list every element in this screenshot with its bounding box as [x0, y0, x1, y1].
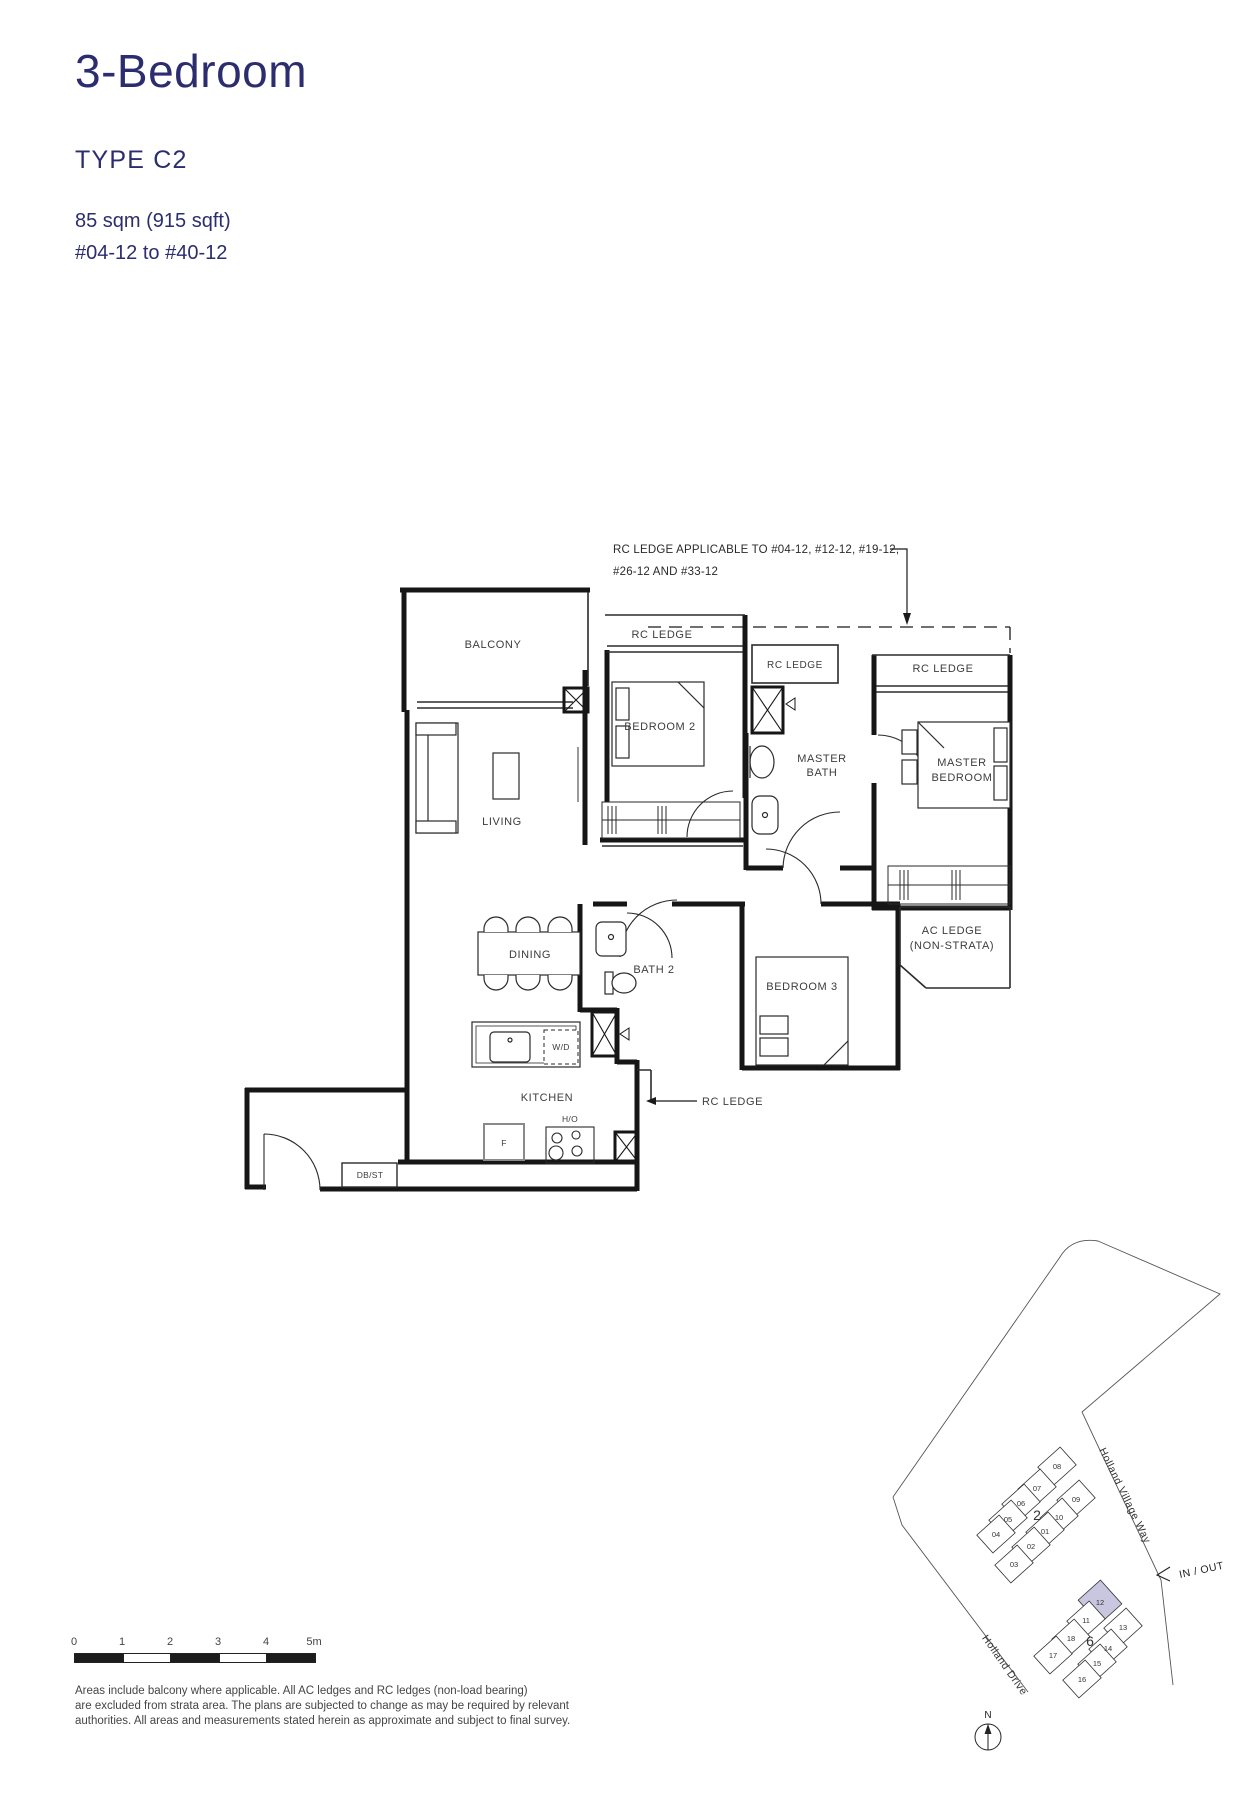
unit-01: 01 — [1041, 1527, 1049, 1536]
wd-label: W/D — [552, 1042, 569, 1052]
rc-ledge-arrow — [646, 1097, 697, 1105]
master-bedroom-label-line1: MASTER — [937, 757, 986, 769]
wc-shaft-icon — [592, 1012, 617, 1056]
scale-tick-2: 2 — [167, 1636, 173, 1648]
scale-tick-0: 0 — [71, 1636, 77, 1648]
annotation-leader-line — [890, 549, 911, 625]
in-out-label: IN / OUT — [1178, 1560, 1225, 1581]
ac-ledge-label-line1: AC LEDGE — [922, 925, 982, 937]
brochure-page: 3-Bedroom TYPE C2 85 sqm (915 sqft) #04-… — [0, 0, 1257, 1815]
rc-ledge-label-3: RC LEDGE — [912, 663, 973, 675]
unit-14: 14 — [1104, 1644, 1112, 1653]
unit-16: 16 — [1078, 1675, 1086, 1684]
master-bath-label-line2: BATH — [807, 767, 838, 779]
north-label: N — [984, 1710, 991, 1721]
unit-03: 03 — [1010, 1560, 1018, 1569]
shaft-icon — [752, 687, 783, 733]
rc-ledge-label-2: RC LEDGE — [767, 660, 823, 671]
kitchen-label: KITCHEN — [521, 1092, 573, 1104]
rc-ledge-dashed-line — [648, 627, 1010, 653]
unit-11: 11 — [1082, 1616, 1090, 1625]
scale-tick-4: 4 — [263, 1636, 269, 1648]
sofa — [416, 723, 458, 833]
page-title: 3-Bedroom — [75, 44, 307, 98]
unit-15: 15 — [1093, 1659, 1101, 1668]
unit-05: 05 — [1004, 1515, 1012, 1524]
rc-ledge-label-1: RC LEDGE — [631, 629, 692, 641]
walls-outer — [245, 590, 1010, 1191]
bedroom3-bed — [756, 957, 848, 1065]
unit-09: 09 — [1072, 1495, 1080, 1504]
bath2-label: BATH 2 — [633, 964, 674, 976]
bedroom2-wardrobe — [602, 802, 740, 838]
scale-bar-segments — [74, 1653, 316, 1663]
unit-13: 13 — [1119, 1623, 1127, 1632]
unit-04: 04 — [992, 1530, 1000, 1539]
unit-18: 18 — [1067, 1634, 1075, 1643]
balcony-label: BALCONY — [465, 639, 522, 651]
fridge-label: F — [501, 1138, 507, 1148]
hob — [546, 1127, 594, 1163]
holland-village-way-label: Holland Village Way — [1096, 1446, 1153, 1546]
unit-stack-range: #04-12 to #40-12 — [75, 242, 227, 265]
disclaimer-line-2: are excluded from strata area. The plans… — [75, 1699, 595, 1714]
ho-label: H/O — [562, 1114, 578, 1124]
unit-area: 85 sqm (915 sqft) — [75, 210, 231, 233]
dbst-label: DB/ST — [357, 1170, 384, 1180]
block-2-label: 2 — [1033, 1507, 1041, 1523]
scale-tick-5: 5m — [306, 1636, 321, 1648]
scale-tick-3: 3 — [215, 1636, 221, 1648]
block-6-label: 6 — [1086, 1633, 1094, 1649]
living-label: LIVING — [482, 816, 522, 828]
unit-07: 07 — [1033, 1484, 1041, 1493]
master-wardrobe — [888, 866, 1010, 904]
dining-label: DINING — [509, 949, 551, 961]
ac-ledge-label-line2: (NON-STRATA) — [910, 940, 994, 952]
bedroom2-label: BEDROOM 2 — [624, 721, 695, 733]
coffee-table — [493, 753, 519, 799]
disclaimer-line-1: Areas include balcony where applicable. … — [75, 1684, 595, 1699]
disclaimer-text: Areas include balcony where applicable. … — [75, 1684, 595, 1729]
in-out-arrow-icon — [1157, 1567, 1170, 1581]
scale-tick-1: 1 — [119, 1636, 125, 1648]
holland-drive-label: Holland Drive — [979, 1633, 1029, 1698]
scale-bar: 0 1 2 3 4 5m — [74, 1636, 374, 1670]
bath2-fixtures — [596, 922, 636, 994]
bedroom3-label: BEDROOM 3 — [766, 981, 837, 993]
unit-type-label: TYPE C2 — [75, 146, 188, 175]
north-compass-icon — [975, 1724, 1001, 1750]
master-bath-label-line1: MASTER — [797, 753, 846, 765]
unit-10: 10 — [1055, 1513, 1063, 1522]
master-bedroom-label-line2: BEDROOM — [931, 772, 992, 784]
wc-shaft-marker-icon — [620, 1028, 629, 1040]
unit-08: 08 — [1053, 1462, 1061, 1471]
master-bath-fixtures — [750, 746, 778, 834]
unit-12: 12 — [1096, 1598, 1104, 1607]
shaft-marker-icon — [786, 698, 795, 710]
rc-ledge-annotation-line1: RC LEDGE APPLICABLE TO #04-12, #12-12, #… — [613, 544, 899, 556]
unit-02: 02 — [1027, 1542, 1035, 1551]
unit-06: 06 — [1017, 1499, 1025, 1508]
floor-plan: RC LEDGE APPLICABLE TO #04-12, #12-12, #… — [200, 460, 1030, 1200]
rc-ledge-annotation-line2: #26-12 AND #33-12 — [613, 566, 718, 578]
disclaimer-line-3: authorities. All areas and measurements … — [75, 1714, 595, 1729]
rc-ledge-label-kitchen: RC LEDGE — [702, 1096, 763, 1108]
unit-17: 17 — [1049, 1651, 1057, 1660]
site-plan: 08 07 06 05 04 09 10 01 02 03 2 12 11 13… — [860, 1185, 1240, 1775]
